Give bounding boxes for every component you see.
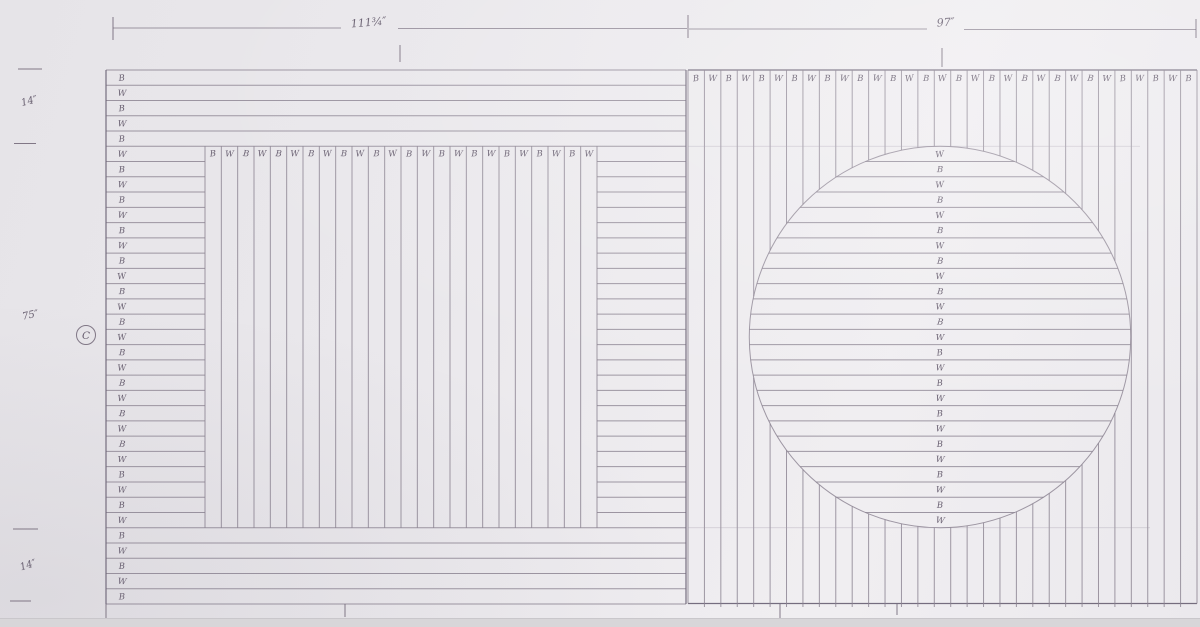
circle-row-label: B	[936, 501, 943, 511]
column-label: B	[724, 74, 732, 85]
column-label: B	[790, 74, 798, 84]
row-label: W	[117, 211, 128, 222]
column-label: B	[856, 74, 863, 84]
row-label: B	[118, 439, 126, 450]
row-label: B	[117, 501, 125, 512]
square-column-label: B	[535, 149, 543, 159]
square-column-label: W	[290, 149, 300, 159]
square-column-label: W	[323, 149, 334, 160]
blueprint-drawing: BWBWBWBWBWBWBWBWBWBWBWBWBWBWBWBWBWBBWBWB…	[0, 0, 1200, 627]
circle-row-label: B	[935, 409, 943, 419]
square-column-label: B	[274, 149, 282, 159]
column-label: B	[987, 74, 995, 84]
square-column-label: B	[372, 149, 379, 159]
circle-row-label: B	[936, 256, 944, 266]
row-label: W	[117, 150, 128, 161]
column-label: W	[1168, 74, 1178, 84]
scanned-blueprint: BWBWBWBWBWBWBWBWBWBWBWBWBWBWBWBWBWBBWBWB…	[0, 0, 1200, 627]
column-label: B	[757, 74, 765, 84]
circle-row-label: B	[936, 226, 944, 236]
column-label: B	[1086, 74, 1094, 85]
square-column-label: W	[552, 149, 562, 159]
row-label: B	[118, 409, 126, 420]
column-label: B	[922, 74, 929, 84]
circle-row-label: W	[935, 516, 946, 527]
circle-row-label: B	[936, 196, 944, 206]
column-label: B	[1151, 74, 1159, 85]
column-label: W	[839, 74, 850, 85]
column-label: B	[1053, 74, 1061, 85]
column-label: W	[741, 74, 751, 84]
circle-row-label: W	[935, 485, 946, 496]
column-label: B	[1184, 74, 1192, 84]
square-column-label: W	[519, 149, 529, 159]
column-label: W	[938, 74, 949, 85]
row-label: B	[117, 134, 125, 144]
row-label: W	[118, 424, 128, 434]
dimension-label-right: 97″	[936, 15, 956, 29]
square-column-label: B	[405, 149, 412, 159]
circle-row-label: W	[936, 302, 946, 312]
column-label: W	[1003, 74, 1014, 85]
row-label: W	[117, 577, 128, 588]
square-column-label: B	[208, 149, 216, 160]
column-label: B	[1118, 74, 1126, 85]
circle-row-label: W	[935, 455, 946, 466]
square-column-label: B	[340, 149, 348, 159]
row-label: B	[118, 196, 126, 206]
square-column-label: B	[503, 149, 511, 159]
row-label: W	[117, 363, 128, 374]
circle-row-label: W	[935, 241, 946, 252]
circle-row-label: B	[935, 379, 943, 390]
row-label: W	[117, 302, 128, 313]
circle-row-label: B	[936, 470, 944, 480]
circle-row-label: W	[935, 180, 946, 191]
circle-row-label: W	[936, 363, 946, 373]
row-label: B	[117, 104, 125, 115]
row-label: W	[118, 516, 128, 526]
column-label: B	[955, 74, 963, 84]
column-label: W	[1069, 74, 1079, 84]
square-column-label: W	[486, 149, 497, 160]
column-label: B	[691, 74, 699, 85]
circle-row-label: W	[935, 424, 946, 435]
circle-row-label: W	[935, 211, 946, 222]
side-dimension-middle: 75″	[21, 308, 40, 322]
row-label: B	[118, 592, 126, 602]
column-label: W	[708, 74, 718, 84]
column-label: B	[889, 74, 896, 84]
column-label: W	[905, 73, 916, 84]
row-label: B	[118, 257, 125, 267]
row-label: W	[117, 271, 128, 282]
column-label: B	[823, 74, 831, 84]
row-label: W	[118, 89, 128, 99]
column-label: W	[774, 74, 785, 85]
row-label: B	[118, 348, 126, 358]
row-label: B	[118, 287, 125, 297]
square-column-label: W	[454, 149, 465, 160]
square-column-label: B	[307, 149, 315, 159]
row-label: B	[117, 531, 125, 541]
column-label: B	[1020, 74, 1028, 84]
row-label: B	[118, 318, 126, 328]
column-label: W	[1036, 74, 1046, 84]
row-label: B	[117, 73, 125, 84]
column-label: W	[872, 74, 883, 85]
row-label: W	[117, 241, 128, 252]
row-label: W	[118, 119, 128, 129]
circle-row-label: B	[936, 317, 944, 328]
row-label: W	[118, 485, 128, 495]
circle-row-label: W	[936, 394, 946, 404]
photo-bottom-edge	[0, 618, 1200, 627]
square-column-label: B	[470, 149, 478, 159]
square-column-label: B	[568, 149, 576, 160]
square-column-label: W	[584, 149, 594, 159]
square-column-label: B	[438, 149, 445, 159]
column-label: W	[1102, 74, 1112, 84]
row-label: B	[118, 562, 126, 572]
dimension-label-left: 111¾″	[350, 14, 388, 30]
square-column-label: W	[388, 149, 399, 160]
row-label: W	[117, 333, 128, 344]
column-label: W	[1135, 74, 1145, 84]
row-label: B	[118, 226, 125, 236]
circle-row-label: B	[936, 440, 944, 450]
square-column-label: B	[241, 149, 249, 160]
detail-marker-letter: C	[82, 330, 90, 342]
circle-row-label: B	[936, 287, 944, 298]
square-column-label: W	[258, 149, 268, 159]
square-column-label: W	[225, 149, 235, 159]
row-label: W	[118, 455, 128, 465]
row-label: B	[118, 165, 126, 175]
square-column-label: W	[355, 149, 366, 160]
circle-row-label: W	[935, 149, 946, 160]
circle-row-label: B	[936, 165, 943, 175]
side-dimension-top: 14″	[20, 94, 39, 109]
column-label: W	[970, 74, 981, 85]
row-label: W	[117, 180, 128, 191]
row-label: B	[117, 470, 125, 481]
circle-row-label: B	[935, 348, 943, 359]
circle-row-label: W	[936, 333, 946, 343]
row-label: B	[118, 379, 126, 389]
row-label: W	[117, 394, 127, 404]
square-column-label: W	[421, 149, 432, 160]
column-label: W	[807, 74, 818, 85]
circle-row-label: W	[935, 272, 945, 282]
row-label: W	[117, 546, 128, 557]
side-dimension-bottom: 14″	[19, 558, 38, 574]
